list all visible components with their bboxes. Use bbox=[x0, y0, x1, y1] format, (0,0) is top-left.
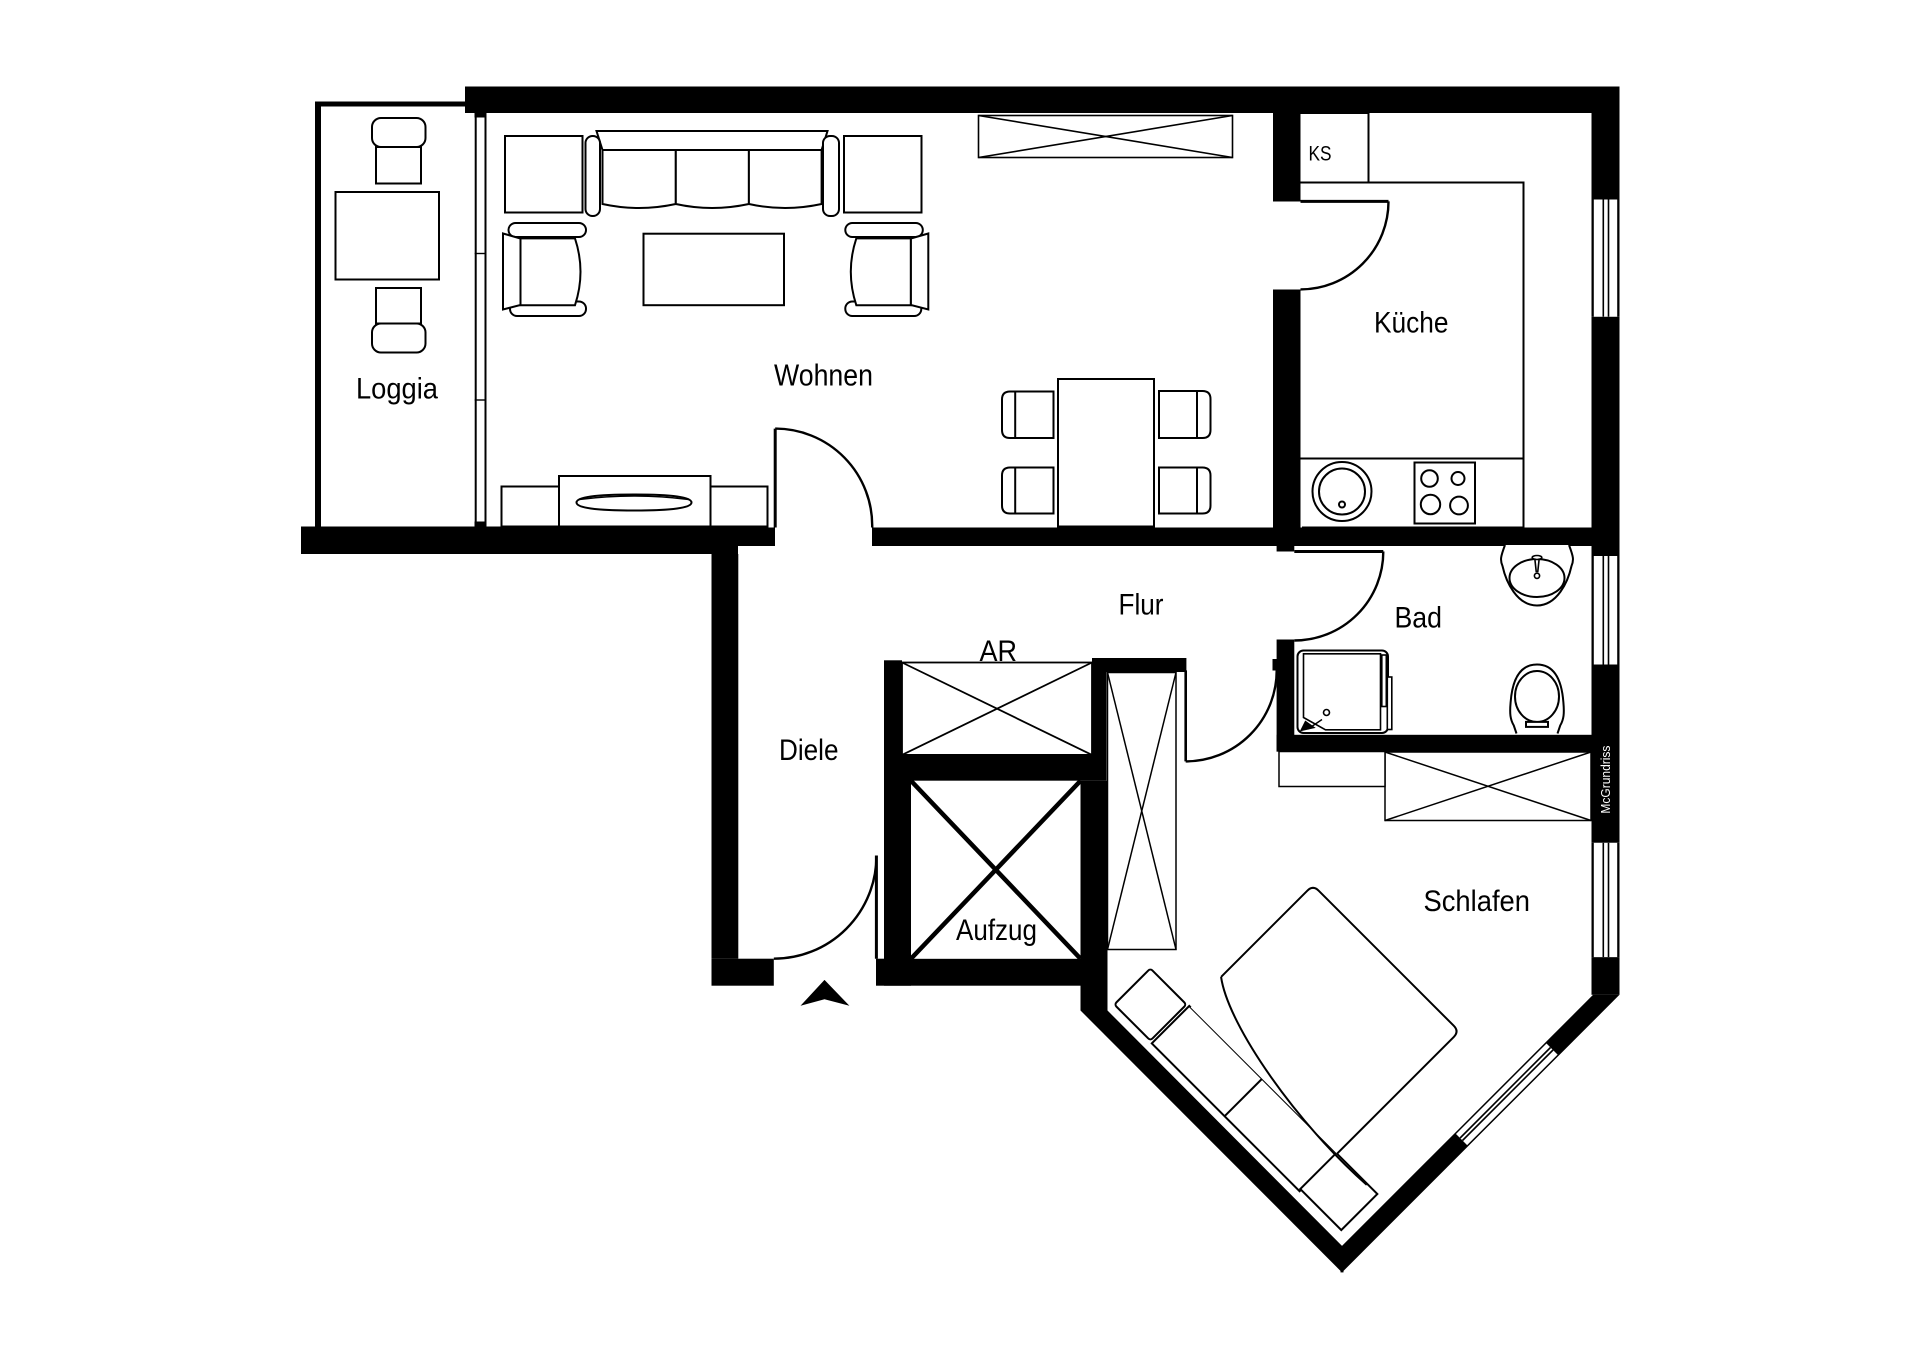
svg-text:Küche: Küche bbox=[1374, 307, 1449, 340]
svg-text:Aufzug: Aufzug bbox=[956, 914, 1037, 947]
svg-text:Wohnen: Wohnen bbox=[774, 358, 873, 393]
svg-text:Bad: Bad bbox=[1395, 602, 1443, 635]
svg-text:KS: KS bbox=[1309, 143, 1332, 166]
svg-text:Diele: Diele bbox=[779, 734, 839, 767]
svg-text:McGrundriss: McGrundriss bbox=[1599, 746, 1613, 814]
svg-text:AR: AR bbox=[980, 635, 1018, 668]
svg-text:Schlafen: Schlafen bbox=[1424, 885, 1531, 918]
svg-text:Loggia: Loggia bbox=[356, 373, 438, 406]
svg-text:Flur: Flur bbox=[1119, 589, 1164, 622]
